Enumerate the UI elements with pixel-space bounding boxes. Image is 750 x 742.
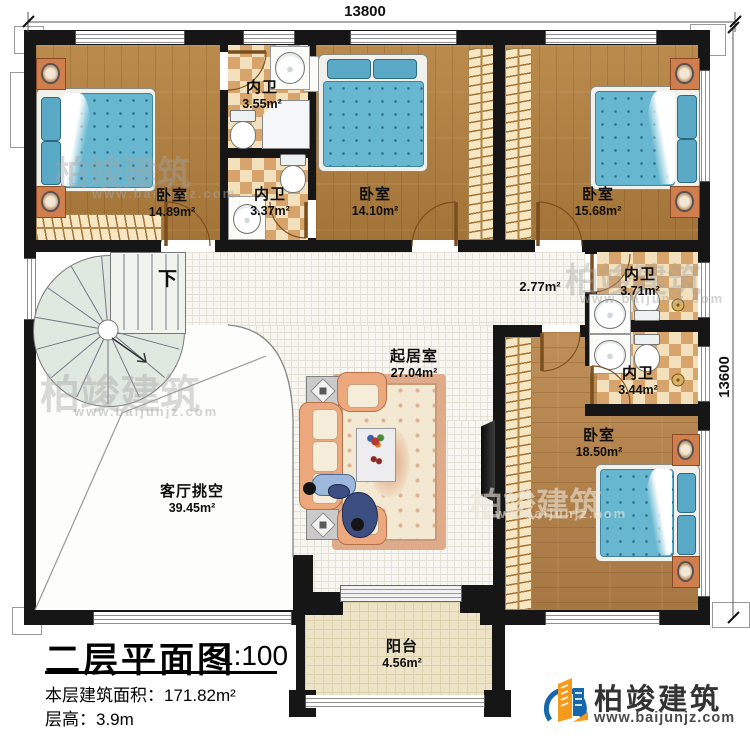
cushion bbox=[347, 384, 379, 408]
wardrobe bbox=[36, 214, 162, 242]
wall bbox=[458, 240, 535, 252]
window bbox=[93, 612, 292, 625]
balcony-railing bbox=[305, 695, 485, 708]
wall bbox=[493, 45, 505, 240]
wall bbox=[308, 238, 316, 252]
pillow bbox=[41, 97, 61, 141]
toilet bbox=[230, 121, 256, 149]
toilet bbox=[634, 344, 660, 372]
sliding-door bbox=[340, 585, 462, 602]
brand-url: www.baijunjz.com bbox=[594, 710, 735, 726]
page-title: 二层平面图 bbox=[45, 632, 235, 683]
bed bbox=[36, 88, 156, 192]
sink bbox=[594, 340, 626, 370]
floor-height-text: 层高：3.9m bbox=[45, 705, 134, 730]
lamp bbox=[675, 63, 693, 85]
stair-down-label: 下 bbox=[158, 264, 177, 291]
bed-sheet bbox=[61, 93, 91, 186]
wall bbox=[24, 240, 161, 252]
floor-plan: 柏竣建筑 www.baijunjz.com 柏竣建筑 www.baijunjz.… bbox=[0, 0, 750, 742]
window bbox=[545, 612, 660, 625]
table-center bbox=[319, 388, 326, 395]
dimension-right: 13600 bbox=[716, 337, 732, 417]
pillow bbox=[677, 139, 697, 183]
nightstand bbox=[36, 58, 66, 90]
coffee-table bbox=[356, 428, 396, 482]
person-head bbox=[303, 482, 316, 495]
bed-sheet bbox=[647, 91, 675, 184]
brand-logo-icon bbox=[542, 674, 590, 726]
tv bbox=[481, 420, 495, 502]
cushion bbox=[312, 409, 338, 440]
window bbox=[24, 258, 36, 320]
dimension-top: 13800 bbox=[315, 3, 415, 20]
pillow bbox=[327, 59, 371, 79]
person-sitting bbox=[342, 492, 378, 538]
window bbox=[545, 31, 657, 44]
drawing-scale: 1:100 bbox=[218, 640, 288, 672]
cushion bbox=[312, 441, 338, 472]
bed bbox=[318, 54, 428, 172]
nightstand bbox=[672, 556, 700, 588]
window bbox=[698, 346, 710, 402]
window bbox=[350, 31, 457, 44]
person-head bbox=[351, 518, 364, 531]
floor-area-text: 本层建筑面积：171.82m² bbox=[45, 681, 236, 706]
pillow bbox=[373, 59, 417, 79]
toilet bbox=[280, 165, 306, 193]
hall-area-label: 2.77m² bbox=[500, 279, 580, 294]
nightstand bbox=[670, 58, 700, 90]
sink bbox=[233, 204, 261, 234]
wardrobe bbox=[505, 48, 532, 240]
mattress bbox=[323, 81, 424, 167]
lamp bbox=[41, 191, 59, 213]
side-table bbox=[306, 509, 339, 540]
nightstand bbox=[670, 186, 700, 218]
pillow bbox=[677, 95, 697, 139]
wall bbox=[220, 90, 228, 240]
wall bbox=[585, 240, 597, 254]
title-underline bbox=[45, 671, 277, 674]
wardrobe bbox=[505, 337, 532, 610]
wall bbox=[493, 325, 542, 337]
wall bbox=[582, 240, 710, 252]
nightstand bbox=[672, 434, 700, 466]
toilet bbox=[634, 310, 660, 321]
armchair bbox=[337, 372, 387, 412]
bed-sheet bbox=[646, 469, 672, 555]
lamp bbox=[677, 561, 694, 583]
lamp bbox=[677, 439, 694, 461]
void-area bbox=[36, 420, 293, 610]
window bbox=[243, 31, 295, 44]
balcony-post bbox=[484, 690, 511, 717]
window bbox=[698, 262, 710, 318]
sink bbox=[594, 299, 626, 329]
balcony-floor bbox=[305, 602, 492, 695]
balcony-wall bbox=[296, 600, 305, 692]
wall bbox=[220, 45, 228, 52]
nightstand bbox=[36, 186, 66, 218]
table-center bbox=[319, 521, 326, 528]
wardrobe bbox=[468, 48, 495, 240]
pillow bbox=[677, 515, 696, 555]
axis-marker bbox=[712, 602, 750, 628]
pillow bbox=[41, 141, 61, 185]
balcony-wall bbox=[492, 600, 505, 692]
lamp bbox=[41, 63, 59, 85]
pillow bbox=[677, 473, 696, 513]
bed bbox=[595, 464, 700, 562]
window bbox=[75, 31, 185, 44]
lamp bbox=[675, 191, 693, 213]
bed bbox=[590, 86, 700, 190]
sink bbox=[275, 52, 305, 84]
wall bbox=[585, 404, 698, 416]
